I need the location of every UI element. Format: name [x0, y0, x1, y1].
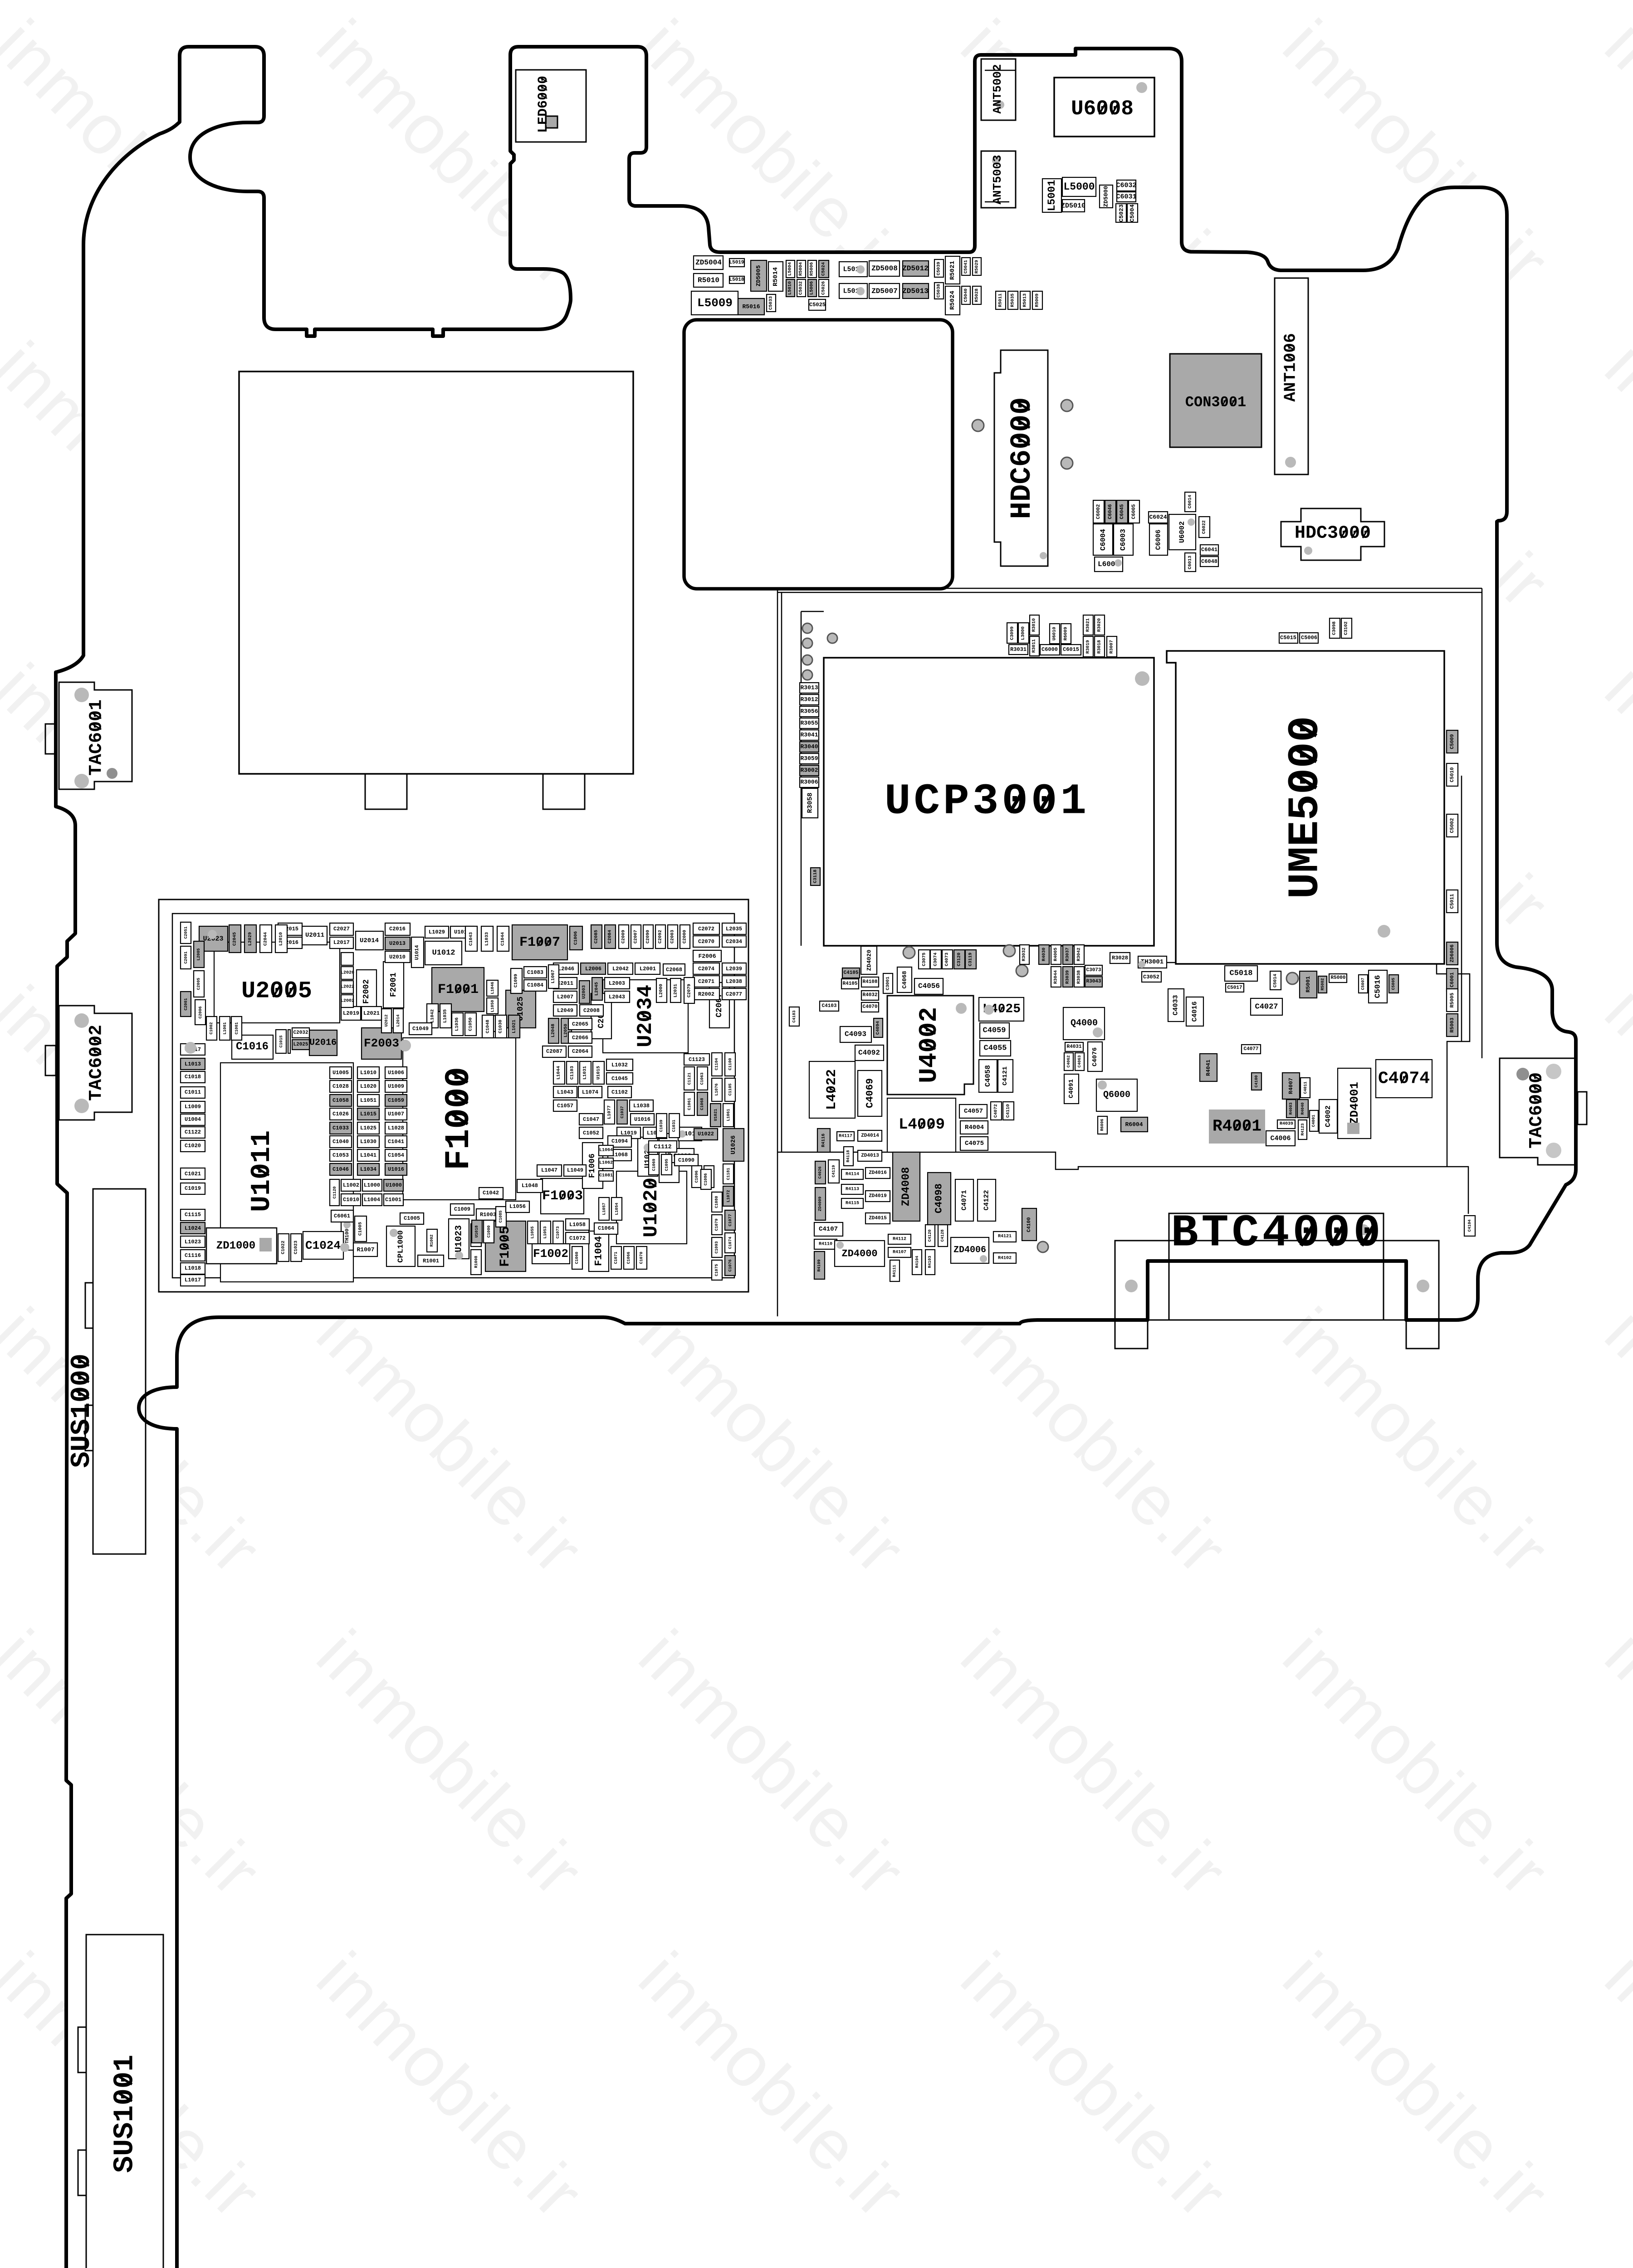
svg-text:L2038: L2038 — [726, 978, 742, 985]
svg-text:L1051: L1051 — [360, 1097, 376, 1104]
svg-text:C2000: C2000 — [683, 930, 688, 943]
svg-text:L1038: L1038 — [633, 1103, 650, 1109]
svg-text:L1004: L1004 — [364, 1197, 380, 1203]
svg-text:C5007: C5007 — [1361, 978, 1365, 990]
svg-text:C4105: C4105 — [843, 970, 858, 976]
svg-text:C5024: C5024 — [821, 262, 826, 276]
svg-text:L1058: L1058 — [569, 1222, 586, 1228]
svg-text:C4107: C4107 — [819, 1226, 838, 1233]
svg-text:C1058: C1058 — [332, 1097, 349, 1104]
svg-text:C1072: C1072 — [569, 1235, 586, 1242]
svg-text:R5001: R5001 — [1305, 976, 1311, 992]
svg-text:C5017: C5017 — [1227, 985, 1242, 991]
svg-text:L1001: L1001 — [223, 1022, 227, 1035]
svg-text:L1018: L1018 — [185, 1265, 201, 1271]
svg-text:C4027: C4027 — [1255, 1003, 1278, 1012]
svg-text:L1036: L1036 — [455, 1017, 460, 1031]
svg-text:R5003: R5003 — [1450, 1017, 1455, 1032]
svg-text:L1067: L1067 — [551, 970, 556, 983]
svg-text:L2039: L2039 — [726, 966, 742, 972]
svg-text:C1075: C1075 — [714, 1264, 719, 1276]
svg-text:ZD5004: ZD5004 — [695, 259, 722, 267]
svg-text:L2010: L2010 — [279, 932, 284, 946]
svg-text:C2034: C2034 — [726, 938, 742, 945]
svg-text:LED6000: LED6000 — [536, 76, 551, 133]
svg-text:R3056: R3056 — [800, 708, 818, 715]
svg-text:L1031: L1031 — [583, 1066, 588, 1080]
svg-text:C6031: C6031 — [1116, 193, 1136, 201]
svg-text:L5006: L5006 — [810, 281, 815, 295]
svg-text:R4113: R4113 — [846, 1187, 859, 1192]
svg-text:C3098: C3098 — [1332, 621, 1337, 635]
svg-text:R4005: R4005 — [1054, 948, 1059, 961]
svg-text:C1099: C1099 — [514, 974, 519, 987]
svg-text:L1061: L1061 — [726, 1109, 731, 1121]
svg-text:U6002: U6002 — [1178, 521, 1186, 543]
svg-text:ZD4014: ZD4014 — [861, 1133, 879, 1139]
svg-text:L2002: L2002 — [341, 999, 354, 1004]
svg-text:C1049: C1049 — [412, 1026, 429, 1032]
svg-text:R3037: R3037 — [1066, 948, 1071, 961]
svg-text:U1005: U1005 — [332, 1070, 349, 1076]
svg-text:C5033: C5033 — [769, 296, 774, 310]
svg-text:C1120: C1120 — [332, 1186, 337, 1198]
svg-text:F2001: F2001 — [389, 973, 398, 997]
svg-text:U1012: U1012 — [432, 949, 455, 958]
svg-text:U6010: U6010 — [1052, 627, 1057, 640]
svg-text:C1042: C1042 — [483, 1190, 499, 1196]
svg-text:C4062: C4062 — [1066, 1055, 1071, 1067]
svg-text:C2079: C2079 — [687, 984, 692, 997]
svg-text:HDC6000: HDC6000 — [1006, 397, 1039, 519]
svg-text:L1056: L1056 — [509, 1203, 526, 1210]
svg-text:L1021: L1021 — [512, 1020, 517, 1033]
svg-text:C4098: C4098 — [934, 1183, 945, 1213]
svg-text:CON3001: CON3001 — [1185, 394, 1246, 411]
svg-text:R1002: R1002 — [430, 1234, 434, 1246]
svg-text:C1037: C1037 — [620, 1106, 625, 1118]
svg-text:ZD6006: ZD6006 — [1450, 944, 1455, 963]
svg-text:R3018: R3018 — [1097, 640, 1102, 654]
svg-text:SUS1001: SUS1001 — [109, 2055, 141, 2173]
svg-text:C2007: C2007 — [634, 930, 639, 943]
svg-text:C4058: C4058 — [984, 1065, 992, 1087]
svg-text:L1048: L1048 — [522, 1183, 538, 1189]
svg-text:F2006: F2006 — [698, 953, 716, 960]
svg-text:C6024: C6024 — [1149, 514, 1167, 521]
svg-text:C3120: C3120 — [957, 953, 962, 966]
svg-text:R5024: R5024 — [949, 291, 956, 310]
svg-text:ZD4006: ZD4006 — [953, 1245, 986, 1256]
svg-text:L1025: L1025 — [360, 1125, 376, 1131]
svg-text:C4011: C4011 — [1303, 1081, 1308, 1094]
svg-text:ZD5007: ZD5007 — [871, 287, 898, 295]
svg-text:L2020: L2020 — [341, 971, 354, 976]
svg-text:L3000: L3000 — [1021, 626, 1026, 640]
svg-text:L1000: L1000 — [364, 1182, 380, 1188]
svg-text:C1085: C1085 — [499, 1210, 503, 1222]
svg-text:C1031: C1031 — [672, 1119, 676, 1132]
svg-text:C5032: C5032 — [799, 281, 804, 295]
svg-text:C4104: C4104 — [1467, 1219, 1472, 1232]
svg-text:C4094: C4094 — [876, 1021, 881, 1035]
svg-text:C3073: C3073 — [1086, 968, 1101, 973]
svg-text:C3074: C3074 — [934, 953, 939, 966]
svg-text:L5000: L5000 — [1063, 181, 1095, 193]
svg-text:C4122: C4122 — [983, 1190, 991, 1210]
svg-text:C2064: C2064 — [572, 1048, 588, 1055]
svg-text:C6000: C6000 — [1041, 646, 1058, 653]
svg-text:C5038: C5038 — [937, 284, 942, 298]
svg-text:C1076: C1076 — [728, 1259, 733, 1271]
svg-text:R4103: R4103 — [928, 1256, 932, 1268]
svg-text:C4063: C4063 — [1077, 1055, 1082, 1067]
svg-text:U1009: U1009 — [388, 1083, 404, 1090]
svg-text:R5000: R5000 — [1330, 975, 1345, 981]
svg-text:C4071: C4071 — [961, 1190, 968, 1210]
svg-text:L1050: L1050 — [490, 1000, 495, 1012]
svg-text:C1064: C1064 — [598, 1225, 614, 1232]
svg-text:C5009: C5009 — [1450, 734, 1455, 749]
svg-text:C1061: C1061 — [687, 1098, 692, 1110]
svg-text:ZD4019: ZD4019 — [869, 1193, 887, 1199]
svg-text:ZD5008: ZD5008 — [871, 264, 898, 273]
svg-text:C5018: C5018 — [1229, 969, 1252, 978]
svg-text:C5002: C5002 — [1450, 818, 1455, 833]
svg-text:C1094: C1094 — [611, 1138, 628, 1144]
svg-text:R6009: R6009 — [1064, 627, 1069, 640]
svg-text:C1005: C1005 — [358, 1222, 363, 1236]
svg-text:C1022: C1022 — [281, 1241, 286, 1254]
svg-text:C1181: C1181 — [726, 1168, 731, 1180]
svg-text:R3013: R3013 — [800, 684, 818, 691]
svg-text:C2087: C2087 — [546, 1048, 562, 1055]
svg-text:L1043: L1043 — [557, 1089, 573, 1095]
svg-text:L2031: L2031 — [674, 984, 679, 997]
svg-text:L1019: L1019 — [621, 1130, 637, 1136]
svg-text:C6048: C6048 — [1201, 558, 1217, 565]
svg-text:R4108: R4108 — [862, 979, 877, 985]
svg-text:C2001: C2001 — [184, 998, 188, 1011]
svg-text:R3040: R3040 — [800, 743, 818, 750]
svg-text:C1080: C1080 — [714, 1196, 719, 1208]
svg-text:R4105: R4105 — [842, 981, 857, 987]
svg-text:R5028: R5028 — [975, 288, 980, 302]
svg-text:C1077: C1077 — [728, 1214, 733, 1226]
svg-text:C4091: C4091 — [1068, 1079, 1075, 1098]
svg-text:C4076: C4076 — [1091, 1047, 1099, 1066]
svg-text:L1077: L1077 — [607, 1105, 612, 1119]
svg-text:C2009: C2009 — [621, 930, 626, 943]
svg-text:C1006: C1006 — [574, 931, 579, 945]
svg-text:C2070: C2070 — [698, 938, 714, 945]
svg-text:R4116: R4116 — [821, 1134, 826, 1147]
svg-text:U1007: U1007 — [388, 1111, 404, 1117]
svg-text:C6046: C6046 — [1108, 504, 1113, 519]
svg-text:C1093: C1093 — [714, 1241, 719, 1253]
svg-text:C1105: C1105 — [728, 1083, 733, 1095]
svg-text:F2002: F2002 — [362, 979, 371, 1004]
svg-text:TAC6000: TAC6000 — [1527, 1072, 1547, 1149]
svg-text:R4118: R4118 — [846, 1150, 851, 1162]
svg-text:F1004: F1004 — [593, 1236, 605, 1266]
svg-text:C1001: C1001 — [235, 1022, 239, 1035]
svg-text:R4123: R4123 — [1301, 1123, 1305, 1135]
svg-text:C2044: C2044 — [264, 932, 269, 946]
svg-text:C2005: C2005 — [196, 978, 201, 990]
svg-text:C3118: C3118 — [813, 870, 818, 883]
svg-text:L2014: L2014 — [396, 1014, 401, 1027]
svg-text:C4119: C4119 — [831, 1165, 836, 1177]
svg-text:C1104: C1104 — [714, 1058, 719, 1070]
svg-text:C6002: C6002 — [1096, 504, 1101, 519]
svg-text:C1019: C1019 — [185, 1185, 201, 1192]
svg-text:F2003: F2003 — [364, 1036, 399, 1050]
svg-text:R3010: R3010 — [1032, 618, 1037, 632]
svg-text:C4073: C4073 — [945, 953, 950, 966]
svg-text:R1001: R1001 — [423, 1258, 439, 1264]
svg-text:C1015: C1015 — [279, 1035, 284, 1047]
svg-text:ANT5003: ANT5003 — [991, 155, 1004, 204]
svg-text:L2022: L2022 — [341, 985, 354, 990]
svg-text:R4102: R4102 — [998, 1256, 1012, 1261]
svg-text:C6041: C6041 — [1201, 547, 1217, 553]
svg-text:C2065: C2065 — [572, 1021, 588, 1027]
svg-text:C1096: C1096 — [694, 1170, 699, 1183]
svg-text:L1035: L1035 — [443, 1009, 448, 1023]
svg-text:R4031: R4031 — [1066, 1044, 1081, 1050]
svg-text:C4056: C4056 — [918, 982, 940, 990]
svg-text:C1116: C1116 — [185, 1252, 201, 1259]
svg-text:C4077: C4077 — [1243, 1046, 1258, 1052]
svg-text:C3075: C3075 — [922, 953, 927, 966]
svg-text:L5009: L5009 — [697, 296, 733, 310]
svg-text:ZD5013: ZD5013 — [902, 287, 929, 295]
svg-text:CPL1000: CPL1000 — [397, 1230, 406, 1262]
svg-text:F1002: F1002 — [533, 1247, 568, 1261]
svg-text:TAC6001: TAC6001 — [87, 699, 107, 776]
svg-text:C2077: C2077 — [726, 991, 742, 997]
svg-text:U1016: U1016 — [388, 1166, 404, 1173]
svg-text:L1013: L1013 — [185, 1061, 201, 1067]
svg-text:C1033: C1033 — [332, 1125, 349, 1131]
svg-text:C4093: C4093 — [845, 1030, 866, 1038]
svg-text:R5014: R5014 — [772, 267, 779, 286]
svg-text:C1059: C1059 — [388, 1097, 404, 1104]
svg-text:L1047: L1047 — [541, 1167, 557, 1173]
svg-text:R4112: R4112 — [893, 1237, 906, 1242]
svg-text:C4057: C4057 — [964, 1108, 983, 1115]
svg-text:U1026: U1026 — [730, 1135, 737, 1154]
svg-text:R3011: R3011 — [1032, 639, 1037, 653]
svg-text:C1026: C1026 — [332, 1111, 349, 1117]
svg-text:R4007: R4007 — [1288, 1078, 1294, 1094]
svg-text:C5005: C5005 — [1391, 978, 1396, 990]
svg-text:Q6000: Q6000 — [1103, 1090, 1130, 1100]
svg-text:C1041: C1041 — [388, 1139, 404, 1145]
svg-text:C1102: C1102 — [611, 1089, 628, 1095]
svg-text:HDC3000: HDC3000 — [1295, 523, 1371, 544]
svg-text:L1041: L1041 — [360, 1152, 376, 1158]
svg-text:L1009: L1009 — [185, 1104, 201, 1110]
svg-text:L1072: L1072 — [726, 1190, 731, 1202]
svg-text:C2066: C2066 — [572, 1035, 588, 1041]
svg-text:U1021: U1021 — [714, 1109, 718, 1121]
svg-text:C4100: C4100 — [1254, 1075, 1259, 1087]
svg-text:C6014: C6014 — [1188, 495, 1193, 508]
svg-text:C4128: C4128 — [940, 1229, 945, 1242]
svg-text:L2001: L2001 — [640, 966, 656, 972]
svg-text:C1100: C1100 — [728, 1058, 733, 1070]
svg-text:C4121: C4121 — [1002, 1066, 1009, 1085]
svg-text:L1029: L1029 — [429, 929, 445, 935]
svg-text:C1052: C1052 — [583, 1130, 599, 1136]
svg-text:UME5000: UME5000 — [1281, 716, 1330, 899]
svg-text:C1043: C1043 — [469, 932, 474, 946]
svg-text:C2084: C2084 — [608, 930, 613, 943]
svg-text:C1001: C1001 — [385, 1197, 401, 1203]
svg-text:R3055: R3055 — [800, 720, 818, 727]
svg-text:C1084: C1084 — [527, 982, 543, 988]
svg-text:L1024: L1024 — [185, 1225, 201, 1232]
svg-text:C4103: C4103 — [821, 1003, 836, 1009]
svg-text:R4111: R4111 — [892, 1265, 897, 1277]
svg-text:R4032: R4032 — [862, 992, 877, 998]
svg-text:R4039: R4039 — [1280, 1122, 1293, 1127]
svg-text:L1053: L1053 — [543, 1226, 548, 1238]
svg-text:L5001: L5001 — [1046, 180, 1058, 211]
svg-text:C4059: C4059 — [983, 1026, 1006, 1035]
svg-text:C4183: C4183 — [792, 1010, 797, 1022]
svg-text:L1042: L1042 — [430, 1009, 435, 1023]
svg-text:C2068: C2068 — [666, 967, 682, 973]
svg-text:R3002: R3002 — [800, 767, 818, 774]
svg-text:R4110: R4110 — [819, 1242, 832, 1247]
svg-text:R4107: R4107 — [893, 1250, 906, 1255]
svg-text:U1000: U1000 — [386, 1182, 402, 1188]
svg-text:C5014: C5014 — [1273, 974, 1278, 987]
svg-text:C1009: C1009 — [454, 1206, 470, 1212]
svg-text:L2019: L2019 — [343, 1010, 359, 1017]
svg-text:C4006: C4006 — [1270, 1135, 1291, 1143]
svg-text:C1021: C1021 — [185, 1171, 201, 1177]
svg-text:C1073: C1073 — [556, 1226, 560, 1238]
svg-text:C6015: C6015 — [1063, 646, 1079, 653]
svg-text:U2003: U2003 — [582, 985, 587, 999]
svg-text:C3102: C3102 — [1344, 621, 1349, 635]
svg-text:R5009: R5009 — [1035, 293, 1040, 307]
svg-text:C1069: C1069 — [652, 1158, 656, 1171]
svg-text:C2032: C2032 — [293, 1030, 308, 1036]
svg-text:L1049: L1049 — [567, 1167, 583, 1173]
svg-text:L1057: L1057 — [602, 1202, 606, 1215]
svg-text:C1122: C1122 — [185, 1129, 201, 1135]
svg-text:C1048: C1048 — [486, 1020, 491, 1033]
svg-text:C1079: C1079 — [714, 1218, 719, 1231]
svg-text:C4068: C4068 — [901, 971, 908, 988]
svg-text:L1055: L1055 — [530, 1226, 535, 1238]
svg-text:U2010: U2010 — [389, 954, 406, 960]
svg-text:C6004: C6004 — [1099, 529, 1107, 551]
svg-text:ZD4013: ZD4013 — [861, 1153, 879, 1158]
svg-text:L1010: L1010 — [360, 1070, 376, 1076]
svg-text:C6032: C6032 — [1116, 182, 1136, 190]
svg-text:R4117: R4117 — [839, 1134, 852, 1139]
svg-text:C2045: C2045 — [233, 932, 238, 946]
svg-text:C2008: C2008 — [583, 1007, 600, 1014]
svg-text:L1062: L1062 — [599, 1161, 613, 1166]
svg-text:L2043: L2043 — [609, 994, 625, 1000]
svg-text:L1074: L1074 — [582, 1089, 598, 1095]
svg-text:U1023: U1023 — [454, 1225, 464, 1252]
svg-text:F1006: F1006 — [588, 1154, 597, 1178]
svg-text:C2003: C2003 — [670, 930, 675, 943]
svg-text:C2074: C2074 — [698, 966, 714, 972]
svg-text:R5005: R5005 — [1450, 992, 1455, 1007]
svg-text:L1033: L1033 — [485, 932, 490, 946]
svg-text:C5015: C5015 — [1280, 635, 1296, 641]
svg-text:C2072: C2072 — [698, 926, 714, 932]
svg-text:R3012: R3012 — [800, 696, 818, 703]
svg-text:C1090: C1090 — [678, 1157, 694, 1163]
svg-text:L2046: L2046 — [558, 966, 574, 972]
svg-text:ZD4020: ZD4020 — [866, 949, 873, 971]
svg-text:ZD4015: ZD4015 — [869, 1216, 887, 1221]
svg-text:ZD4008: ZD4008 — [900, 1167, 913, 1206]
svg-text:C5039: C5039 — [937, 262, 942, 275]
svg-text:R2002: R2002 — [698, 991, 714, 997]
svg-text:R3059: R3059 — [800, 755, 818, 762]
svg-text:L2050: L2050 — [564, 1024, 569, 1037]
svg-text:R5002: R5002 — [1320, 978, 1325, 990]
svg-text:BTC4000: BTC4000 — [1171, 1208, 1384, 1260]
svg-text:R5029: R5029 — [975, 260, 980, 274]
svg-text:C3052: C3052 — [1143, 974, 1159, 980]
svg-text:C1002: C1002 — [209, 1022, 214, 1034]
svg-text:C2051: C2051 — [184, 926, 188, 939]
svg-text:U2013: U2013 — [389, 940, 406, 947]
svg-text:C1086: C1086 — [704, 1173, 708, 1185]
svg-text:C2027: C2027 — [333, 926, 350, 932]
svg-text:R5004: R5004 — [799, 262, 804, 276]
svg-text:C1053: C1053 — [332, 1152, 349, 1158]
svg-text:L2021: L2021 — [363, 1010, 380, 1017]
svg-text:C4016: C4016 — [1191, 1001, 1199, 1022]
svg-text:L2049: L2049 — [557, 1007, 573, 1014]
svg-text:R5035: R5035 — [1011, 293, 1016, 307]
svg-text:L1017: L1017 — [185, 1277, 201, 1283]
svg-text:C2092: C2092 — [658, 930, 663, 943]
svg-text:L2048: L2048 — [551, 1024, 556, 1037]
svg-text:TAC6002: TAC6002 — [87, 1025, 107, 1101]
svg-text:R3058: R3058 — [807, 792, 814, 813]
svg-text:L2000: L2000 — [659, 984, 664, 997]
svg-text:C4075: C4075 — [965, 1140, 984, 1147]
svg-text:R5021: R5021 — [949, 261, 956, 280]
svg-text:L1015: L1015 — [360, 1111, 376, 1117]
svg-text:C1068: C1068 — [700, 1098, 704, 1110]
svg-text:L1054: L1054 — [615, 1202, 619, 1215]
svg-text:C1112: C1112 — [654, 1144, 671, 1150]
svg-text:R3044: R3044 — [1054, 970, 1059, 984]
svg-text:C1046: C1046 — [332, 1166, 349, 1173]
svg-text:R3031: R3031 — [1010, 646, 1027, 653]
svg-text:C5040: C5040 — [964, 288, 969, 302]
svg-text:C6061: C6061 — [334, 1213, 350, 1219]
svg-text:C6022: C6022 — [1202, 520, 1207, 534]
svg-text:ZD4001: ZD4001 — [1348, 1082, 1361, 1124]
svg-text:C5025: C5025 — [809, 302, 826, 308]
